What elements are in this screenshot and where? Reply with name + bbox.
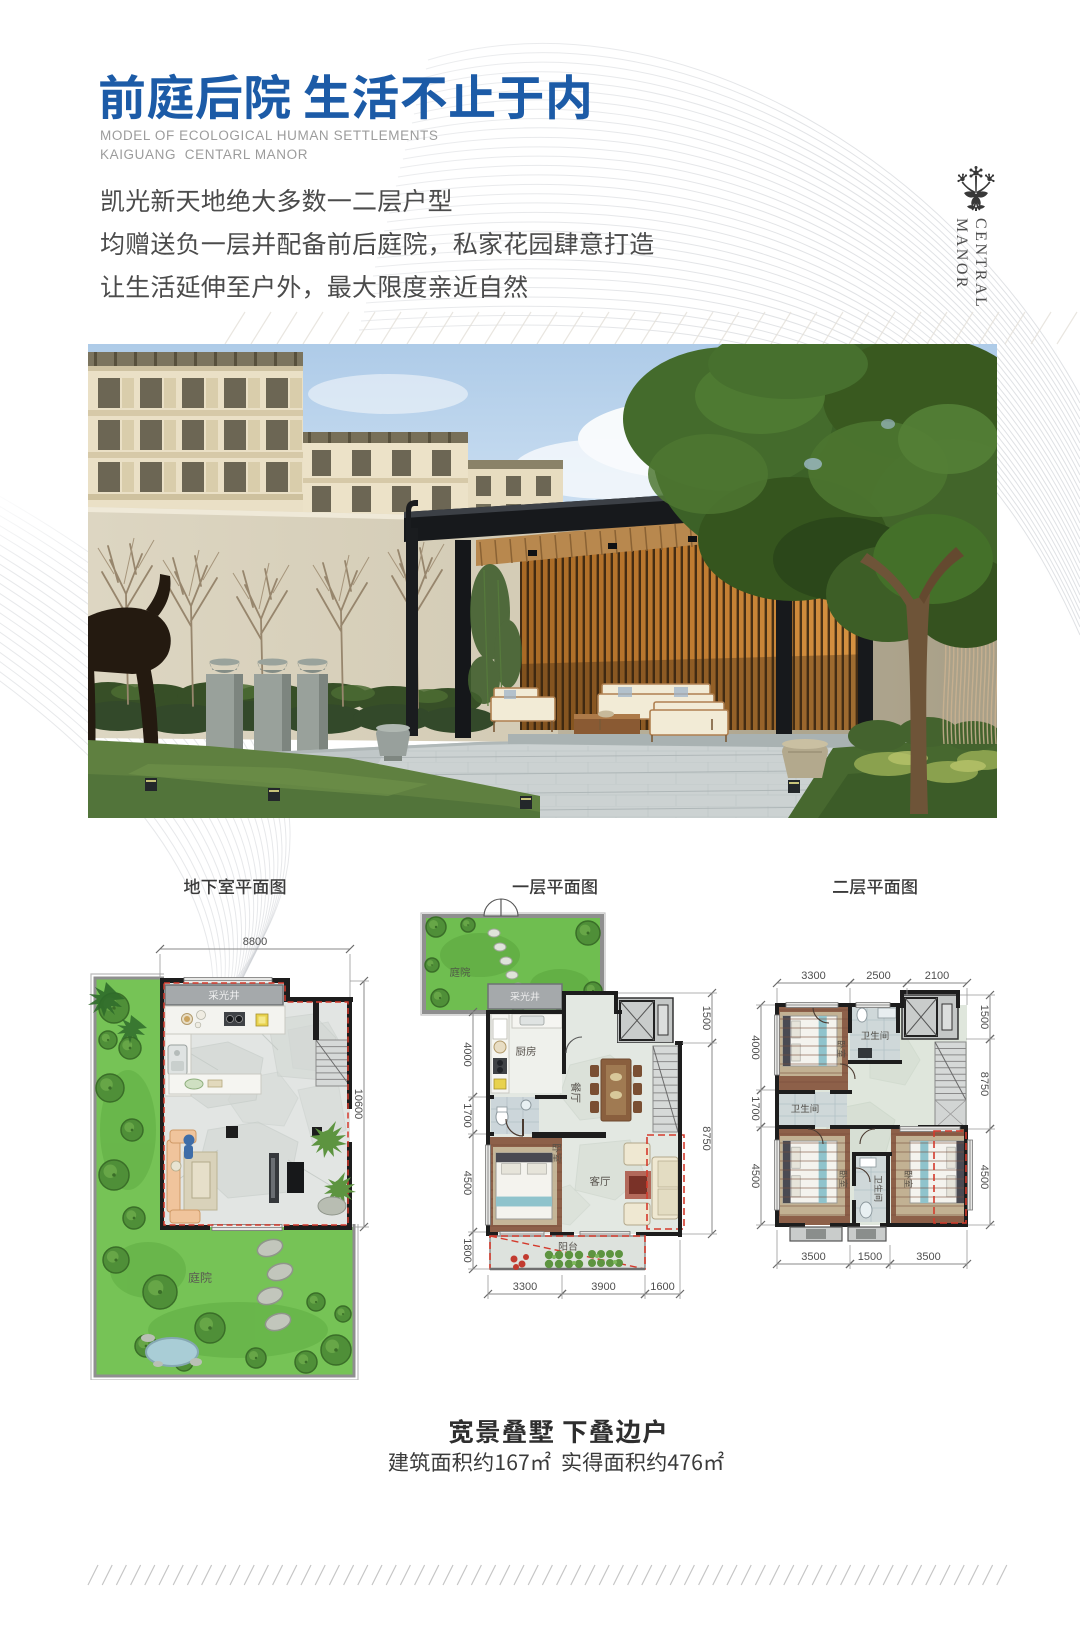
svg-text:1500: 1500 — [978, 1005, 990, 1029]
svg-text:8800: 8800 — [243, 936, 267, 948]
svg-text:8750: 8750 — [700, 1126, 712, 1150]
svg-text:1500: 1500 — [858, 1251, 882, 1263]
svg-text:2100: 2100 — [925, 970, 949, 982]
svg-text:3300: 3300 — [513, 1281, 537, 1293]
svg-text:1700: 1700 — [750, 1096, 761, 1120]
svg-text:8750: 8750 — [978, 1072, 990, 1096]
svg-text:1800: 1800 — [461, 1238, 473, 1262]
svg-text:3300: 3300 — [801, 970, 825, 982]
svg-text:4000: 4000 — [750, 1035, 761, 1059]
svg-text:10600: 10600 — [352, 1089, 364, 1120]
svg-text:4500: 4500 — [461, 1171, 473, 1195]
svg-text:3900: 3900 — [591, 1281, 615, 1293]
svg-text:2500: 2500 — [866, 970, 890, 982]
svg-text:4500: 4500 — [750, 1164, 761, 1188]
svg-text:3500: 3500 — [801, 1251, 825, 1263]
svg-text:1500: 1500 — [700, 1006, 712, 1030]
svg-text:4500: 4500 — [978, 1165, 990, 1189]
svg-text:1700: 1700 — [461, 1103, 473, 1127]
svg-text:1600: 1600 — [650, 1281, 674, 1293]
svg-text:3500: 3500 — [916, 1251, 940, 1263]
svg-text:4000: 4000 — [461, 1042, 473, 1066]
